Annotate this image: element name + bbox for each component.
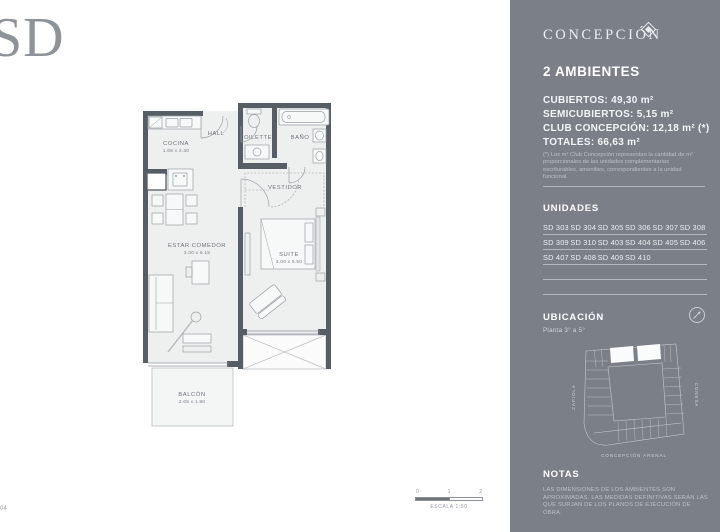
site-map: ZAPIOLA CONESA CONCEPCIÓN ARENAL [560, 337, 704, 461]
room-label-suite: SUITE [279, 252, 299, 258]
unit-cell: SD 308 [680, 223, 707, 232]
inner-ring-line [594, 423, 681, 433]
room-label-cocina: COCINA [163, 141, 189, 147]
refrigerator [147, 173, 166, 190]
unit-cell: SD 303 [543, 223, 570, 232]
unit-cell: SD 310 [570, 238, 597, 247]
scale-ticks: 0 1 2 [415, 489, 483, 495]
unit-cell: SD 410 [625, 253, 652, 262]
unit-cell: SD 405 [652, 238, 679, 247]
area-line-club: CLUB CONCEPCIÓN: 12,18 m² (*) [543, 122, 710, 136]
street-label-zapiola: ZAPIOLA [571, 384, 576, 410]
floor-plan: COCINA 1.65 x 2.30 HALL TOILETTE BAÑO VE… [139, 95, 335, 435]
unidades-heading: UNIDADES [543, 203, 599, 214]
divider-line [543, 186, 705, 187]
street-label-conesa: CONESA [694, 383, 699, 408]
street-label-concepcion-arenal: CONCEPCIÓN ARENAL [601, 452, 667, 458]
scale-label: ESCALA 1:50 [415, 504, 483, 510]
room-dims-cocina: 1.65 x 2.30 [163, 148, 189, 154]
room-label-estar: ESTAR COMEDOR [168, 243, 226, 249]
areas-list: CUBIERTOS: 49,30 m² SEMICUBIERTOS: 5,15 … [543, 94, 710, 150]
floor-plan-drawing: COCINA 1.65 x 2.30 HALL TOILETTE BAÑO VE… [139, 95, 335, 435]
room-label-hall: HALL [208, 131, 225, 137]
room-dims-balcon: 2.65 x 1.90 [179, 399, 205, 405]
unit-cell: SD 307 [652, 223, 679, 232]
room-dims-estar: 3.00 x 6.15 [184, 250, 210, 256]
area-line-semicubiertos: SEMICUBIERTOS: 5,15 m² [543, 108, 710, 122]
scale-bar-graphic [415, 497, 483, 501]
scale-tick-1: 1 [448, 489, 451, 495]
sheet-code: 04 [0, 506, 7, 512]
unit-cell: SD 406 [680, 238, 707, 247]
info-panel: CONCEPCIÓN 2 AMBIENTES CUBIERTOS: 49,30 … [510, 0, 720, 532]
room-label-vestidor: VESTIDOR [268, 185, 302, 191]
unit-cell: SD 409 [598, 253, 625, 262]
room-dims-suite: 3.00 x 5.50 [276, 259, 302, 265]
ubicacion-heading: UBICACIÓN [543, 312, 604, 323]
area-line-totales: TOTALES: 66,63 m² [543, 136, 710, 150]
plan-sheet: SD 04 [0, 0, 510, 532]
unit-cell: SD 407 [543, 253, 570, 262]
unit-cell: SD 305 [598, 223, 625, 232]
courtyard-outline [608, 363, 666, 421]
unit-cell: SD 404 [625, 238, 652, 247]
room-label-toilette: TOILETTE [240, 135, 272, 141]
terrace-void-hatch [243, 335, 326, 369]
unit-cell: SD 309 [543, 238, 570, 247]
unidades-table: SD 303 SD 304 SD 305 SD 306 SD 307 SD 30… [543, 220, 707, 295]
area-line-cubiertos: CUBIERTOS: 49,30 m² [543, 94, 710, 108]
scale-tick-2: 2 [479, 489, 482, 495]
unit-cell: SD 306 [625, 223, 652, 232]
unidades-row-empty [543, 265, 707, 280]
scale-tick-0: 0 [416, 489, 419, 495]
sd-brand-logo: SD [0, 10, 65, 66]
notas-heading: NOTAS [543, 469, 580, 480]
room-label-balcon: BALCÓN [178, 391, 205, 398]
north-compass-icon [689, 307, 705, 323]
unit-cell: SD 408 [570, 253, 597, 262]
unidades-row: SD 407 SD 408 SD 409 SD 410 [543, 250, 707, 265]
areas-footnote: (*) Los m² Club Concepción representan l… [543, 152, 699, 182]
notas-text: LAS DIMENSIONES DE LOS AMBIENTES SON APR… [543, 487, 711, 517]
scale-bar: 0 1 2 ESCALA 1:50 [415, 489, 483, 510]
site-outline [584, 344, 684, 445]
unidades-row: SD 309 SD 310 SD 403 SD 404 SD 405 SD 40… [543, 235, 707, 250]
unit-type-title: 2 AMBIENTES [543, 64, 640, 79]
unidades-row-empty [543, 280, 707, 295]
room-label-bano: BAÑO [291, 134, 310, 141]
unit-partitions [585, 345, 684, 442]
ubicacion-subtitle: Planta 3° a 5° [543, 327, 585, 334]
unit-cell: SD 403 [598, 238, 625, 247]
unidades-row: SD 303 SD 304 SD 305 SD 306 SD 307 SD 30… [543, 220, 707, 235]
unit-cell: SD 304 [570, 223, 597, 232]
